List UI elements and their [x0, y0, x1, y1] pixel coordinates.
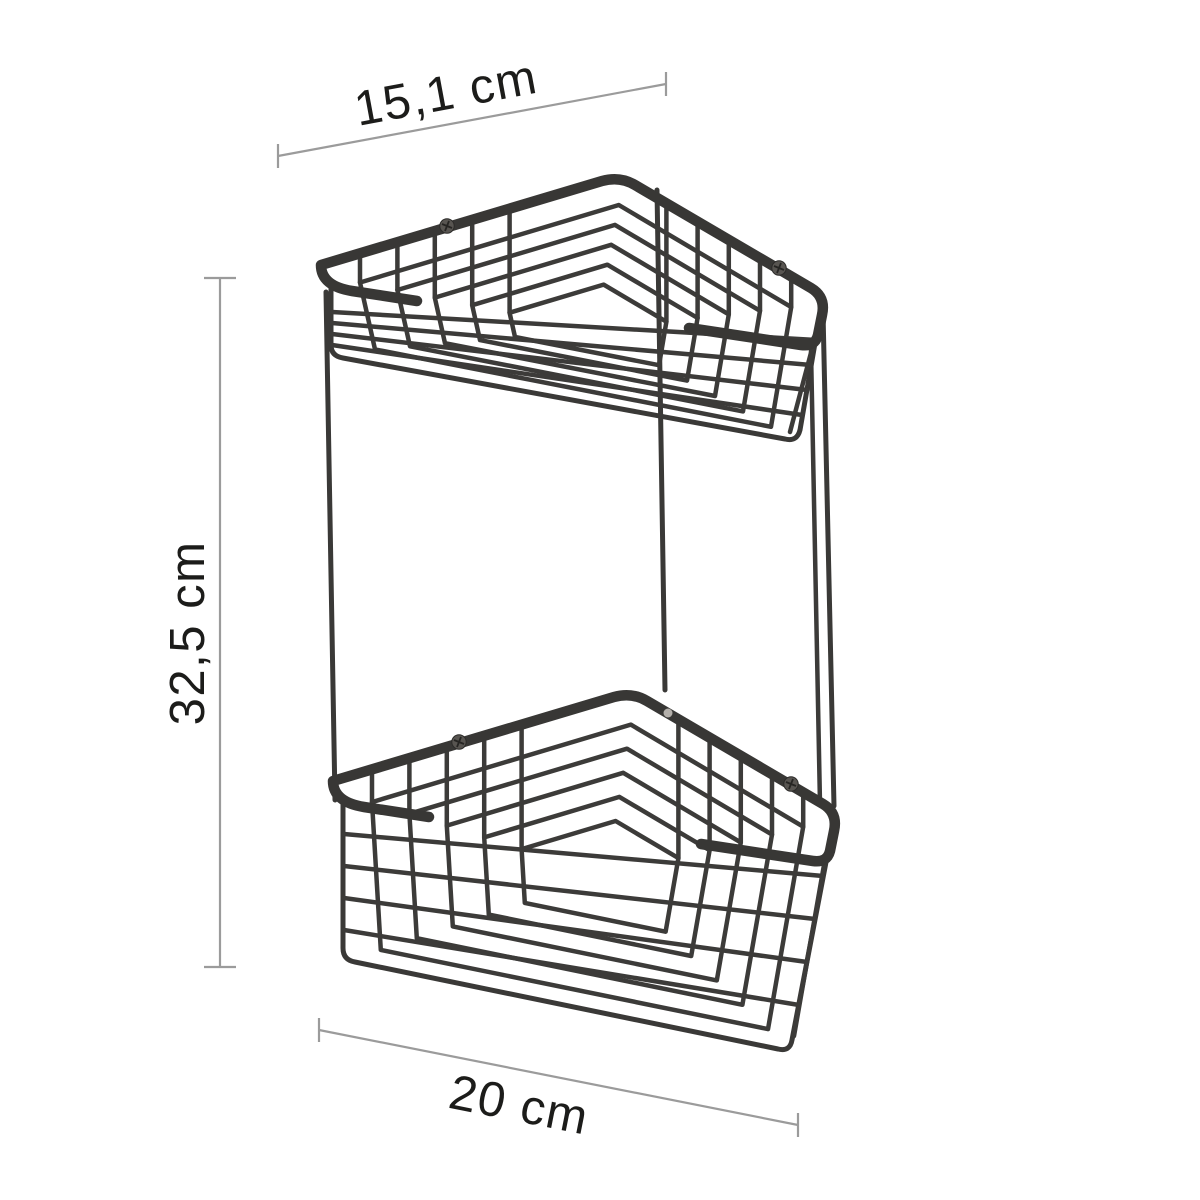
- support-wire-left: [326, 292, 335, 800]
- dimension-label-height: 32,5 cm: [161, 541, 215, 726]
- product-dimension-diagram: 15,1 cm 32,5 cm 20 cm: [0, 0, 1200, 1200]
- dimension-label-width: 15,1 cm: [350, 50, 542, 137]
- wire-loop: [522, 821, 679, 932]
- mounting-screw: [452, 735, 466, 749]
- wall-rail: [344, 930, 799, 1005]
- basket-wall-rails: [331, 287, 819, 440]
- basket-tier-bottom: [333, 695, 835, 1049]
- dimension-height-left: 32,5 cm: [161, 278, 236, 967]
- support-wire-right-outer: [823, 312, 834, 806]
- dimension-width-top: 15,1 cm: [278, 50, 666, 168]
- screw-tip-glint: [664, 709, 673, 718]
- support-wire-middle: [657, 190, 665, 690]
- mounting-screw: [784, 777, 798, 791]
- mounting-screw: [772, 261, 786, 275]
- basket-tier-top: [321, 179, 823, 439]
- dimension-label-depth: 20 cm: [445, 1065, 594, 1145]
- support-wire-right-inner: [811, 350, 820, 804]
- wall-rail: [794, 865, 824, 1036]
- mounting-screw: [440, 219, 454, 233]
- diagram-canvas: 15,1 cm 32,5 cm 20 cm: [0, 0, 1200, 1200]
